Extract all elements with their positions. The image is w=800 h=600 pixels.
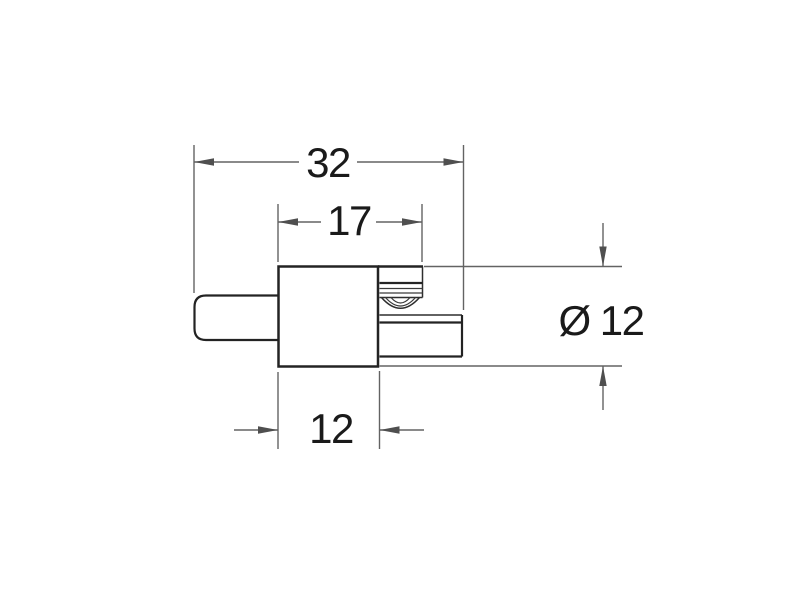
- arrowhead-left: [278, 218, 298, 225]
- arrowhead-right: [402, 218, 422, 225]
- dimension-diameter: Ø 12: [380, 223, 644, 410]
- arrowhead-down: [599, 247, 606, 267]
- arrowhead-right: [444, 158, 464, 165]
- tab-outline: [380, 315, 463, 357]
- arrowhead-right-pointing: [258, 426, 278, 433]
- dimension-body-and-clip-length: 17: [278, 197, 422, 262]
- dim-diameter-label: Ø 12: [558, 297, 643, 344]
- drawing-canvas: 32 17 12: [0, 0, 800, 600]
- technical-drawing: 32 17 12: [0, 0, 800, 600]
- pin-outline: [195, 296, 279, 341]
- dim-body-length-label: 12: [309, 405, 353, 452]
- clip-ribs: [380, 283, 423, 298]
- arrowhead-up: [599, 366, 606, 386]
- detent-arc-inner: [391, 298, 410, 304]
- dim-body-and-clip-length-label: 17: [327, 197, 371, 244]
- dimension-body-length: 12: [234, 371, 424, 452]
- body-outline: [279, 267, 379, 367]
- dim-overall-length-label: 32: [306, 139, 350, 186]
- arrowhead-left-pointing: [380, 426, 400, 433]
- arrowhead-left: [194, 158, 214, 165]
- detent-arcs: [382, 298, 420, 309]
- part-view: [195, 267, 463, 367]
